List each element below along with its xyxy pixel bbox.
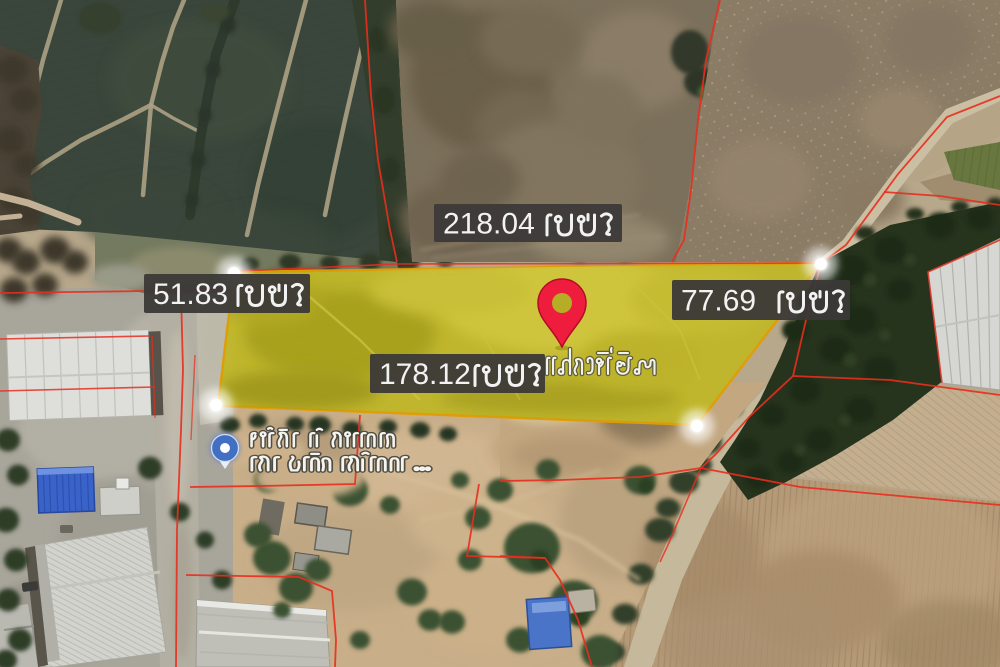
svg-text:218.04: 218.04: [443, 208, 535, 241]
svg-text:51.83: 51.83: [153, 278, 228, 311]
svg-text:77.69: 77.69: [681, 285, 756, 318]
svg-text:178.12: 178.12: [379, 358, 471, 391]
